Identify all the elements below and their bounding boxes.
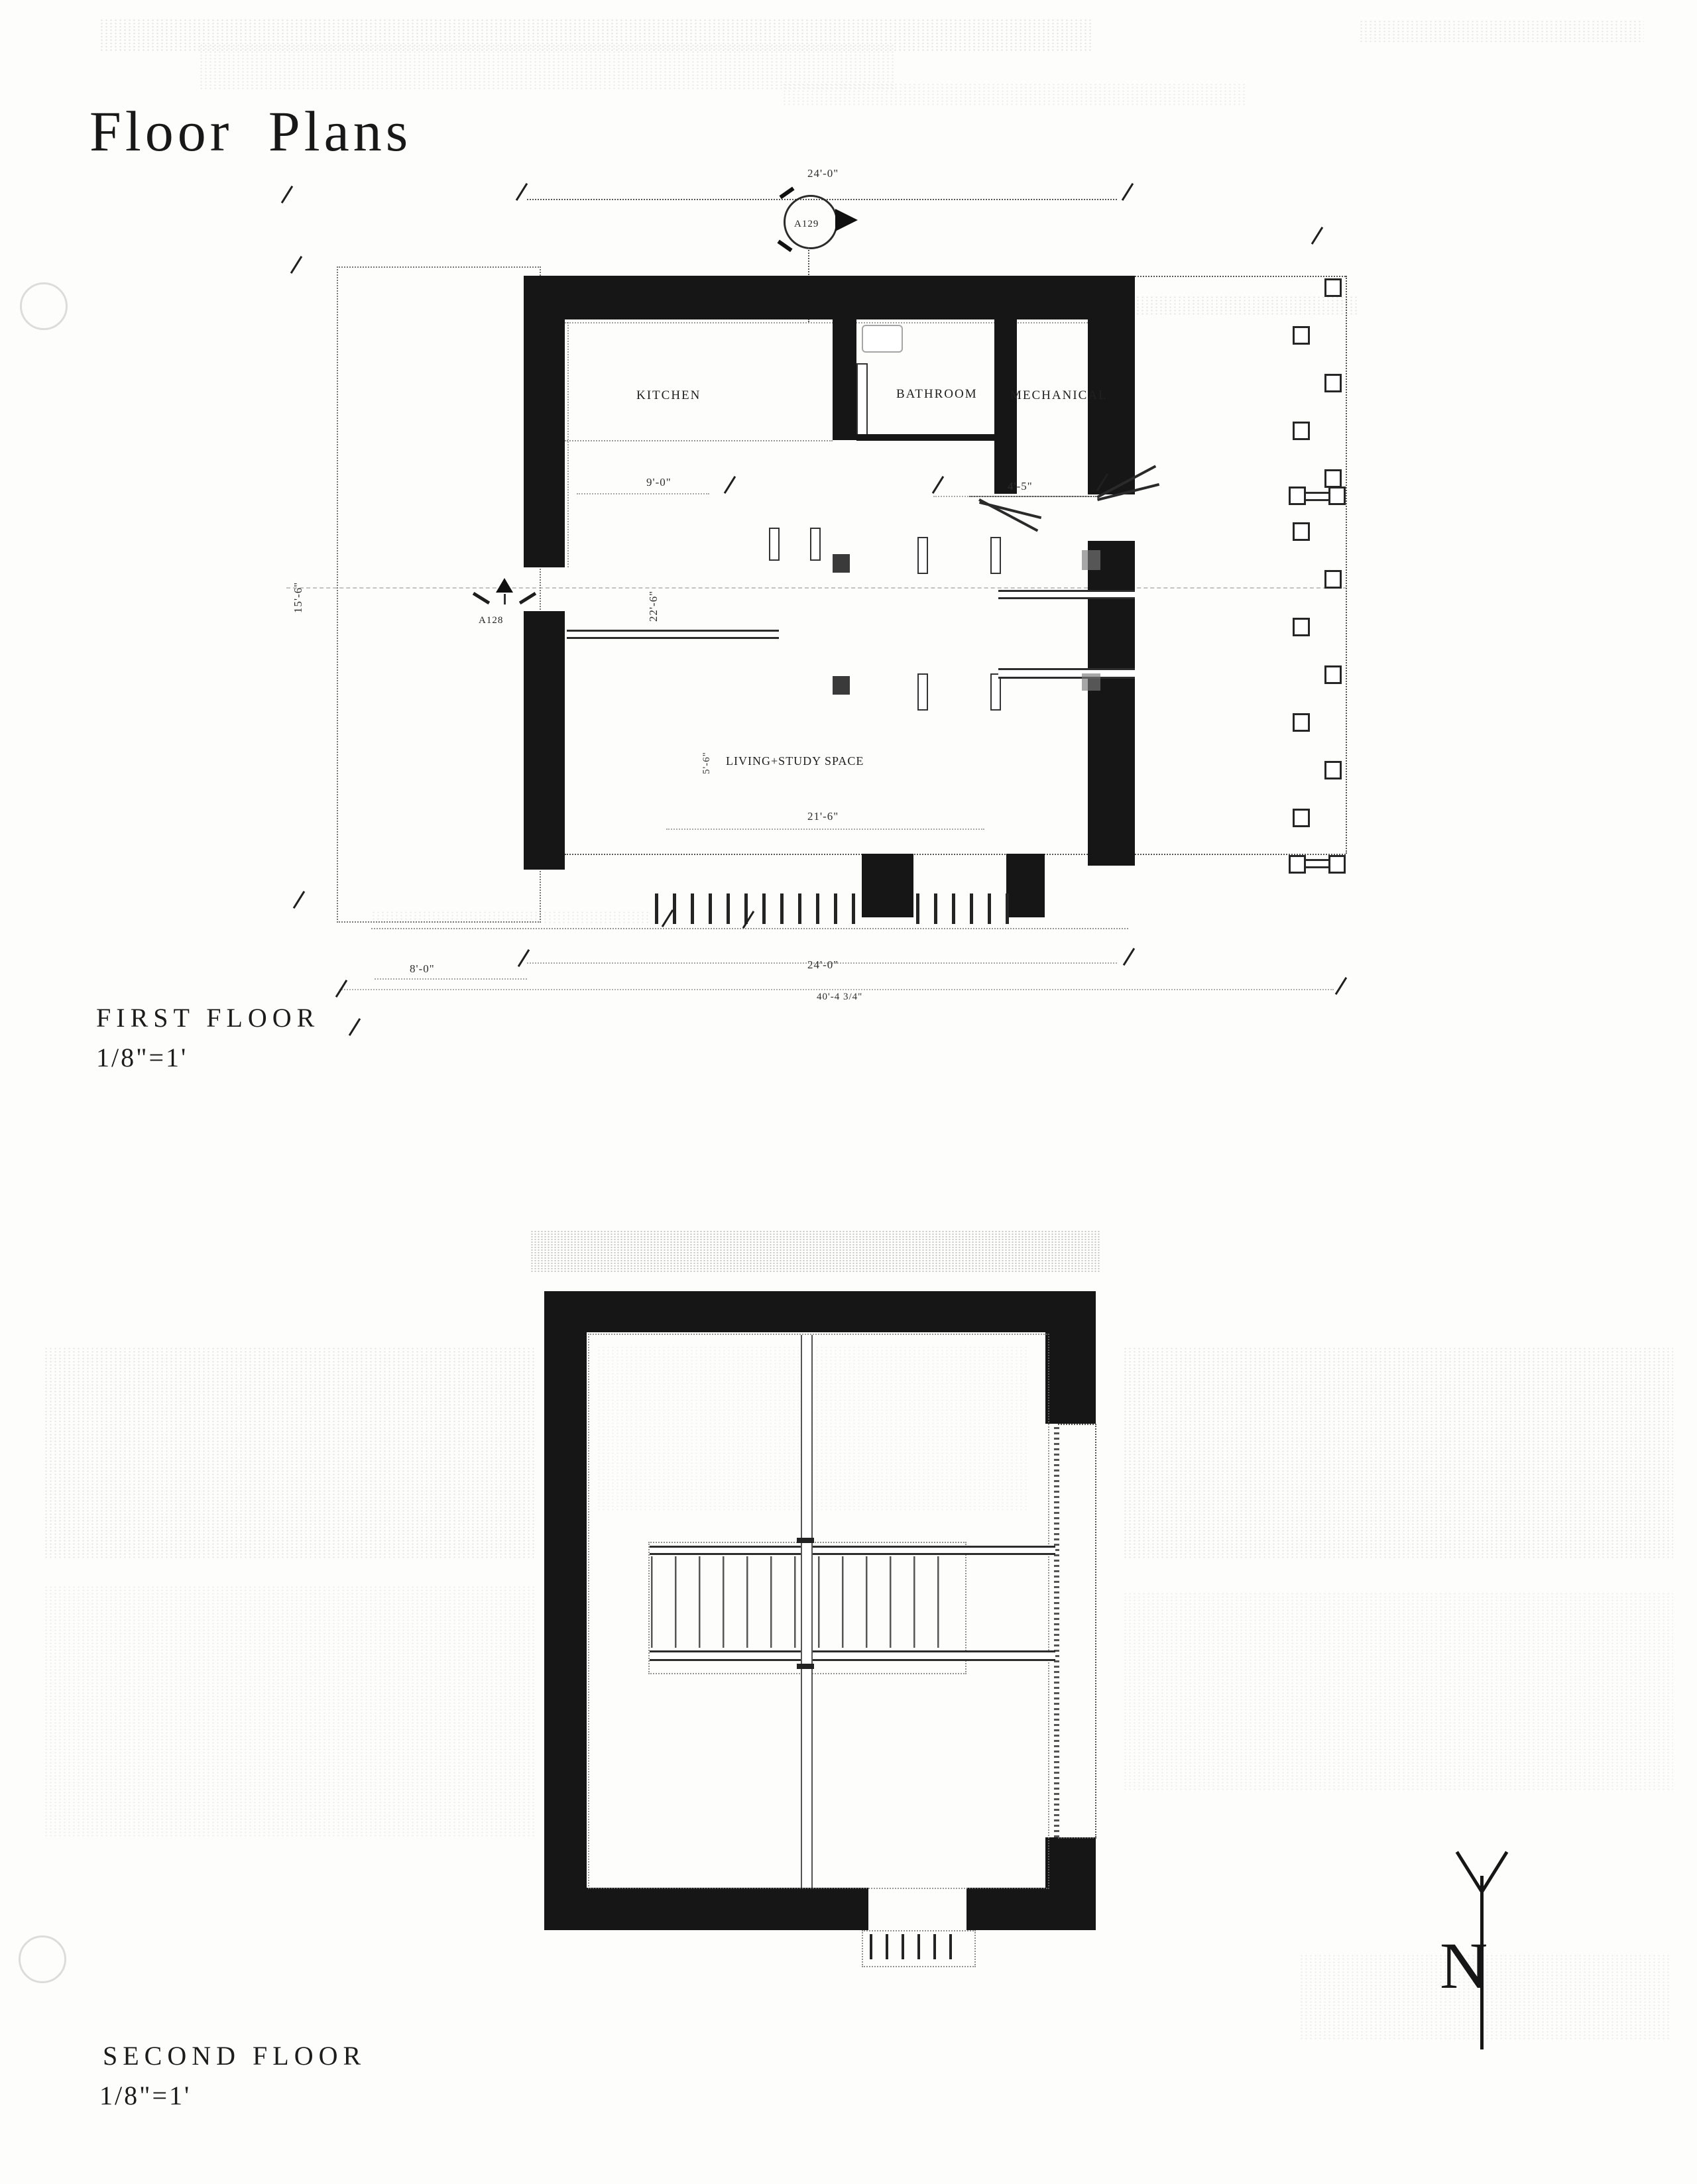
dim-top-width: 24'-0"	[807, 167, 839, 180]
dim-tick	[1335, 977, 1347, 995]
porch-post	[1324, 761, 1342, 779]
second-floor-scale: 1/8"=1'	[99, 2080, 191, 2111]
kitchen-floor-edge	[565, 440, 833, 441]
door-stub	[769, 528, 780, 561]
wall-pier	[862, 854, 913, 917]
dimension-line	[375, 978, 527, 980]
scan-noise-band	[44, 1585, 537, 1837]
balcony-edge	[1058, 1837, 1096, 1839]
dim-bottom-width: 24'-0"	[807, 958, 839, 972]
wall-east-upper	[1045, 1291, 1096, 1424]
dim-bath: 4'-5"	[1008, 480, 1033, 493]
east-porch-edge	[1135, 854, 1346, 855]
drawing-sheet: Floor Plans 24'-0" A129 15'-6"	[0, 0, 1697, 2184]
column	[833, 554, 850, 573]
wall-south-left	[544, 1888, 868, 1930]
column	[833, 676, 850, 695]
scan-noise-band	[1123, 1347, 1673, 1559]
door-stub	[990, 673, 1001, 711]
wall-north	[544, 1291, 1088, 1332]
dim-tick	[290, 256, 302, 274]
section-cut-line	[286, 587, 1347, 589]
wall-east-upper	[1088, 276, 1135, 494]
east-porch-edge	[1346, 276, 1347, 854]
north-arrow-head	[1481, 1851, 1508, 1892]
section-flag	[779, 187, 794, 200]
porch-post	[1293, 809, 1310, 827]
porch-post	[1289, 855, 1306, 874]
scan-noise-band	[1359, 20, 1644, 44]
dimension-line	[933, 496, 1092, 497]
porch-post	[1324, 570, 1342, 589]
dim-overall: 40'-4 3/4"	[817, 992, 862, 1003]
section-marker-label: A128	[479, 615, 503, 626]
porch-post	[1328, 487, 1346, 505]
dimension-line	[527, 962, 1117, 964]
dim-interior: 21'-6"	[807, 810, 839, 823]
porch-post	[1293, 326, 1310, 345]
section-flag	[504, 594, 506, 604]
dimension-line	[666, 829, 984, 830]
wall-hatch-block	[1082, 673, 1100, 691]
east-porch-edge	[1135, 276, 1346, 277]
partition-rail	[998, 668, 1135, 679]
partition-rail	[998, 590, 1135, 599]
room-label-kitchen: KITCHEN	[636, 388, 701, 403]
section-marker-label: A129	[794, 219, 819, 230]
partition-rail	[567, 630, 779, 639]
wall-west-upper	[524, 276, 565, 567]
scan-noise-band	[99, 19, 1094, 52]
wall-bath-mech	[994, 319, 1017, 494]
door-jamb	[797, 1664, 814, 1669]
dim-tick	[281, 186, 293, 203]
porch-post	[1293, 522, 1310, 541]
dim-tick	[1122, 183, 1134, 201]
bathroom-door-leaf	[856, 363, 868, 440]
deck-steps-hatch	[655, 893, 859, 924]
north-arrow-head	[1456, 1851, 1483, 1892]
porch-post	[1293, 713, 1310, 732]
door-stub	[810, 528, 821, 561]
scan-noise-band	[782, 83, 1246, 105]
dim-west-porch: 15'-6"	[292, 582, 305, 613]
scan-noise-band	[199, 44, 895, 90]
entry-steps-hatch	[870, 1934, 965, 1959]
west-porch-outline	[337, 266, 541, 923]
dim-tick	[932, 476, 944, 494]
dim-living-minor: 5'-6"	[701, 752, 713, 774]
porch-post	[1324, 278, 1342, 297]
first-floor-scale: 1/8"=1'	[96, 1042, 188, 1073]
porch-post	[1324, 374, 1342, 392]
porch-post	[1293, 422, 1310, 440]
second-floor-title: SECOND FLOOR	[103, 2040, 366, 2071]
scan-noise-band	[1123, 1592, 1673, 1791]
scan-noise-band	[44, 1347, 537, 1559]
wall-west	[544, 1291, 587, 1930]
door-stub	[990, 537, 1001, 574]
page-title: Floor Plans	[89, 98, 412, 164]
dim-porch: 8'-0"	[410, 962, 435, 976]
dimension-line	[339, 989, 1334, 990]
scan-noise-band	[530, 1230, 1100, 1273]
first-floor-title: FIRST FLOOR	[96, 1002, 320, 1033]
section-flag	[777, 240, 792, 253]
dim-tick	[724, 476, 736, 494]
dim-living-depth: 22'-6"	[647, 591, 660, 622]
dim-tick	[1123, 948, 1135, 966]
wall-kitchen-bath	[833, 319, 856, 440]
porch-post	[1289, 487, 1306, 505]
stair-landing-rail	[961, 1650, 1055, 1661]
wall-bath-south	[856, 434, 994, 441]
dim-tick	[293, 891, 305, 909]
door-stub	[917, 537, 928, 574]
bathroom-sink	[862, 325, 903, 353]
center-wall	[801, 1335, 813, 1888]
stair-landing-rail	[961, 1546, 1055, 1555]
dim-tick	[516, 183, 528, 201]
wall-east-lower	[1045, 1837, 1096, 1930]
wall-north	[524, 276, 1135, 319]
door-stub	[917, 673, 928, 711]
window-wall	[1054, 1424, 1059, 1837]
punch-hole-mark	[20, 282, 68, 330]
dim-tick	[1311, 227, 1323, 245]
deck-steps-hatch	[916, 893, 1022, 924]
deck-edge-line	[371, 928, 1128, 929]
room-label-bathroom: BATHROOM	[896, 387, 978, 402]
dim-tick	[349, 1018, 361, 1036]
porch-post	[1324, 469, 1342, 488]
wall-west-lower	[524, 611, 565, 870]
dimension-line	[577, 493, 709, 494]
wall-hatch-block	[1082, 550, 1100, 570]
balcony-edge	[1095, 1424, 1096, 1837]
north-label: N	[1440, 1927, 1488, 2004]
room-label-mechanical: MECHANICAL	[1010, 388, 1108, 403]
punch-hole-mark	[19, 1935, 66, 1983]
porch-post	[1324, 665, 1342, 684]
balcony-edge	[1058, 1424, 1096, 1425]
section-arrow-icon	[496, 578, 513, 593]
porch-post	[1328, 855, 1346, 874]
porch-post	[1293, 618, 1310, 636]
room-label-living: LIVING+STUDY SPACE	[726, 754, 864, 768]
wall-inner-edge	[567, 322, 569, 567]
section-arrow-icon	[835, 209, 858, 231]
dim-tick	[518, 949, 530, 967]
door-jamb	[797, 1538, 814, 1543]
dim-kitchen: 9'-0"	[646, 476, 672, 489]
